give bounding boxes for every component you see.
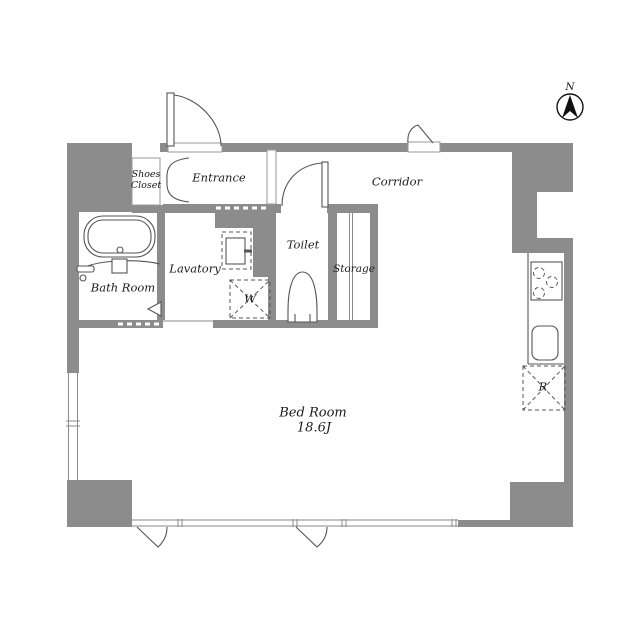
bathroom-door-icon [148, 302, 161, 316]
bed-room-size: 18.6J [297, 422, 331, 437]
kitchen-counter [528, 253, 564, 364]
bathtub [80, 216, 160, 273]
refrigerator-label: R [539, 380, 548, 393]
bath-room-label: Bath Room [91, 281, 155, 294]
bath-faucet-icon [112, 259, 127, 273]
sink-icon [532, 326, 558, 360]
casement-window-icons [137, 527, 327, 547]
storage-label: Storage [333, 263, 375, 275]
compass-icon [557, 94, 583, 120]
toilet-label: Toilet [287, 238, 319, 251]
left-window [66, 373, 80, 480]
floors-and-openings [118, 142, 440, 328]
washing-machine-label: W [244, 292, 256, 305]
lavatory-label: Lavatory [169, 262, 220, 275]
floor-plan-drawing [0, 0, 640, 640]
bottom-window [132, 519, 458, 527]
shoes-closet-line2: Closet [131, 180, 161, 191]
shoes-closet-line1: Shoes [132, 169, 161, 180]
shoes-closet-label: ShoesCloset [131, 170, 161, 192]
corridor-label: Corridor [372, 175, 422, 188]
front-door [167, 93, 221, 146]
corridor-door [408, 125, 433, 143]
toilet-door [282, 162, 328, 207]
stove-icon [531, 262, 562, 300]
washbasin [222, 232, 252, 269]
toilet-fixture [288, 272, 317, 322]
compass-north-label: N [565, 81, 574, 93]
bed-room-label: Bed Room [279, 407, 346, 422]
floor-plan: N ShoesCloset Entrance Corridor Toilet S… [0, 0, 640, 640]
entrance-label: Entrance [192, 171, 245, 184]
shower-icon [77, 266, 94, 281]
